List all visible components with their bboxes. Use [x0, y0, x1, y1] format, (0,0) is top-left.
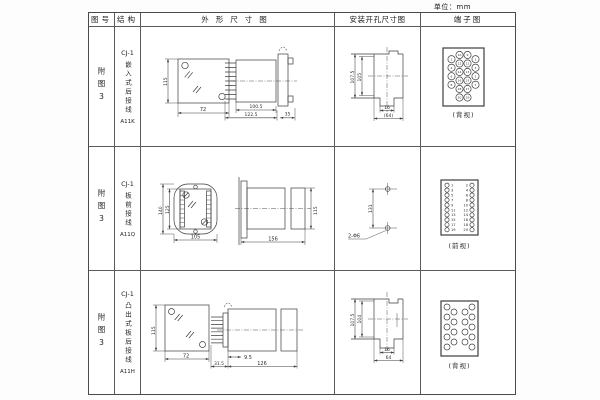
- svg-text:10: 10: [463, 203, 468, 207]
- svg-text:6: 6: [451, 74, 453, 78]
- install-cell: 107.5 105 16 (64): [335, 27, 421, 147]
- model-label: CJ-1: [121, 180, 134, 188]
- outline-cell: 140 125 105 156 115: [141, 147, 335, 271]
- unit-label: 单位：mm: [400, 2, 505, 12]
- svg-text:20: 20: [463, 228, 468, 232]
- svg-text:8: 8: [466, 198, 469, 202]
- dimension-label: 126: [257, 361, 267, 367]
- dimension-label: 16: [384, 347, 390, 353]
- svg-text:17: 17: [466, 87, 470, 91]
- svg-text:20: 20: [458, 96, 462, 100]
- document-page: 单位：mm 图号 结构 外形尺寸图 安装开孔尺寸图 端子图 附图3 CJ-1 嵌…: [0, 0, 600, 400]
- svg-text:14: 14: [463, 213, 468, 217]
- dimension-label: 104: [357, 315, 363, 324]
- outline-drawing-a11q: 140 125 105 156 115: [141, 147, 334, 270]
- svg-text:8: 8: [451, 83, 453, 87]
- svg-text:9: 9: [467, 53, 469, 57]
- svg-text:15: 15: [466, 79, 470, 83]
- dimension-label: 35: [285, 111, 291, 117]
- dimension-label: 9.5: [244, 355, 252, 361]
- svg-text:7: 7: [451, 198, 453, 202]
- svg-text:19: 19: [466, 96, 470, 100]
- dimension-label: (64): [384, 113, 393, 119]
- dimension-label: 100.5: [250, 104, 263, 110]
- dimension-label: 125: [165, 205, 171, 214]
- svg-text:13: 13: [466, 70, 470, 74]
- structure-name-label: 板前接线: [123, 192, 133, 228]
- svg-text:1: 1: [475, 57, 477, 61]
- install-drawing-a11h: 107.5 104 16 64: [335, 271, 420, 393]
- install-drawing-a11k: 107.5 105 16 (64): [335, 27, 420, 146]
- svg-text:18: 18: [463, 223, 468, 227]
- header-install: 安装开孔尺寸图: [335, 13, 421, 27]
- dimension-label: 64: [386, 355, 392, 361]
- install-drawing-a11q: 131 2-Φ6: [335, 147, 420, 270]
- view-label: (背视): [452, 110, 474, 119]
- fig-no-cell: 附图3: [89, 147, 115, 271]
- structure-cell: CJ-1 板前接线 A11Q: [115, 147, 141, 271]
- svg-text:13: 13: [451, 213, 456, 217]
- svg-text:1: 1: [451, 184, 453, 188]
- view-label: (背视): [448, 361, 470, 370]
- structure-name-label: 凸出式板后接线: [123, 302, 133, 365]
- dimension-label: 2-Φ6: [348, 234, 360, 240]
- structure-cell: CJ-1 凸出式板后接线 A11H: [115, 271, 141, 394]
- dimension-label: 72: [183, 353, 189, 359]
- outline-drawing-a11h: 115 72 9.5 31.5 126: [141, 271, 334, 393]
- header-outline: 外形尺寸图: [141, 13, 335, 27]
- svg-text:7: 7: [475, 83, 477, 87]
- spec-table: 图号 结构 外形尺寸图 安装开孔尺寸图 端子图 附图3 CJ-1 嵌入式后接线 …: [88, 12, 516, 395]
- terminal-cell: 1234567891011121314151617181920 (前视): [421, 147, 515, 271]
- dimension-label: 122.5: [245, 112, 258, 118]
- structure-name-label: 嵌入式后接线: [123, 61, 133, 115]
- svg-text:10: 10: [458, 53, 462, 57]
- outline-cell: 115 72 9.5 31.5 126: [141, 271, 335, 394]
- dimension-label: 115: [163, 77, 169, 86]
- svg-text:5: 5: [451, 193, 453, 197]
- terminal-grid: 2468101214161820911131517191357: [448, 51, 479, 101]
- svg-text:2: 2: [451, 57, 453, 61]
- dimension-label: 107.5: [350, 70, 356, 83]
- fig-no-label: 附图3: [96, 189, 107, 228]
- fig-no-label: 附图3: [96, 67, 107, 106]
- terminal-diagram-a11h: (背视): [421, 271, 514, 393]
- model-code-label: A11H: [120, 369, 135, 375]
- header-structure: 结构: [115, 13, 141, 27]
- svg-text:15: 15: [451, 218, 456, 222]
- svg-text:16: 16: [463, 218, 468, 222]
- terminal-diagram-a11k: 2468101214161820911131517191357 (背视): [421, 27, 514, 146]
- outline-cell: 115 72 100.5 122.5 35: [141, 27, 335, 147]
- svg-text:16: 16: [458, 79, 462, 83]
- svg-text:6: 6: [466, 193, 469, 197]
- svg-text:2: 2: [466, 184, 468, 188]
- svg-text:12: 12: [458, 62, 462, 66]
- dimension-label: 156: [268, 236, 278, 242]
- svg-text:14: 14: [458, 70, 462, 74]
- dimension-label: 105: [357, 73, 363, 82]
- dimension-label: 107.5: [350, 313, 356, 326]
- terminal-cell: (背视): [421, 271, 515, 394]
- dimension-label: 105: [191, 234, 201, 240]
- fig-no-cell: 附图3: [89, 271, 115, 394]
- svg-text:3: 3: [475, 66, 477, 70]
- install-cell: 107.5 104 16 64: [335, 271, 421, 394]
- dimension-label: 16: [384, 105, 390, 111]
- model-label: CJ-1: [121, 49, 134, 57]
- dimension-label: 115: [151, 326, 157, 335]
- dimension-label: 31.5: [214, 361, 224, 367]
- outline-drawing-a11k: 115 72 100.5 122.5 35: [141, 27, 334, 146]
- svg-text:3: 3: [451, 188, 453, 192]
- svg-text:11: 11: [466, 62, 470, 66]
- svg-text:5: 5: [475, 74, 477, 78]
- terminal-grid: [444, 304, 475, 350]
- svg-text:11: 11: [451, 208, 456, 212]
- view-label: (前视): [448, 241, 470, 250]
- terminal-grid: 1234567891011121314151617181920: [445, 183, 474, 232]
- fig-no-label: 附图3: [96, 313, 107, 352]
- terminal-cell: 2468101214161820911131517191357 (背视): [421, 27, 515, 147]
- dimension-label: 72: [200, 107, 206, 113]
- svg-text:19: 19: [451, 228, 456, 232]
- model-code-label: A11Q: [120, 232, 135, 238]
- dimension-label: 115: [313, 206, 319, 215]
- svg-text:17: 17: [451, 223, 456, 227]
- svg-text:12: 12: [463, 208, 468, 212]
- model-code-label: A11K: [120, 119, 134, 125]
- dimension-label: 140: [158, 206, 164, 215]
- structure-cell: CJ-1 嵌入式后接线 A11K: [115, 27, 141, 147]
- model-label: CJ-1: [121, 290, 134, 298]
- header-terminal: 端子图: [421, 13, 515, 27]
- install-cell: 131 2-Φ6: [335, 147, 421, 271]
- header-fig-no: 图号: [89, 13, 115, 27]
- terminal-diagram-a11q: 1234567891011121314151617181920 (前视): [421, 147, 514, 270]
- svg-text:9: 9: [451, 203, 454, 207]
- svg-text:18: 18: [458, 87, 462, 91]
- svg-text:4: 4: [466, 188, 469, 192]
- svg-text:4: 4: [451, 66, 453, 70]
- dimension-label: 131: [368, 204, 374, 213]
- fig-no-cell: 附图3: [89, 27, 115, 147]
